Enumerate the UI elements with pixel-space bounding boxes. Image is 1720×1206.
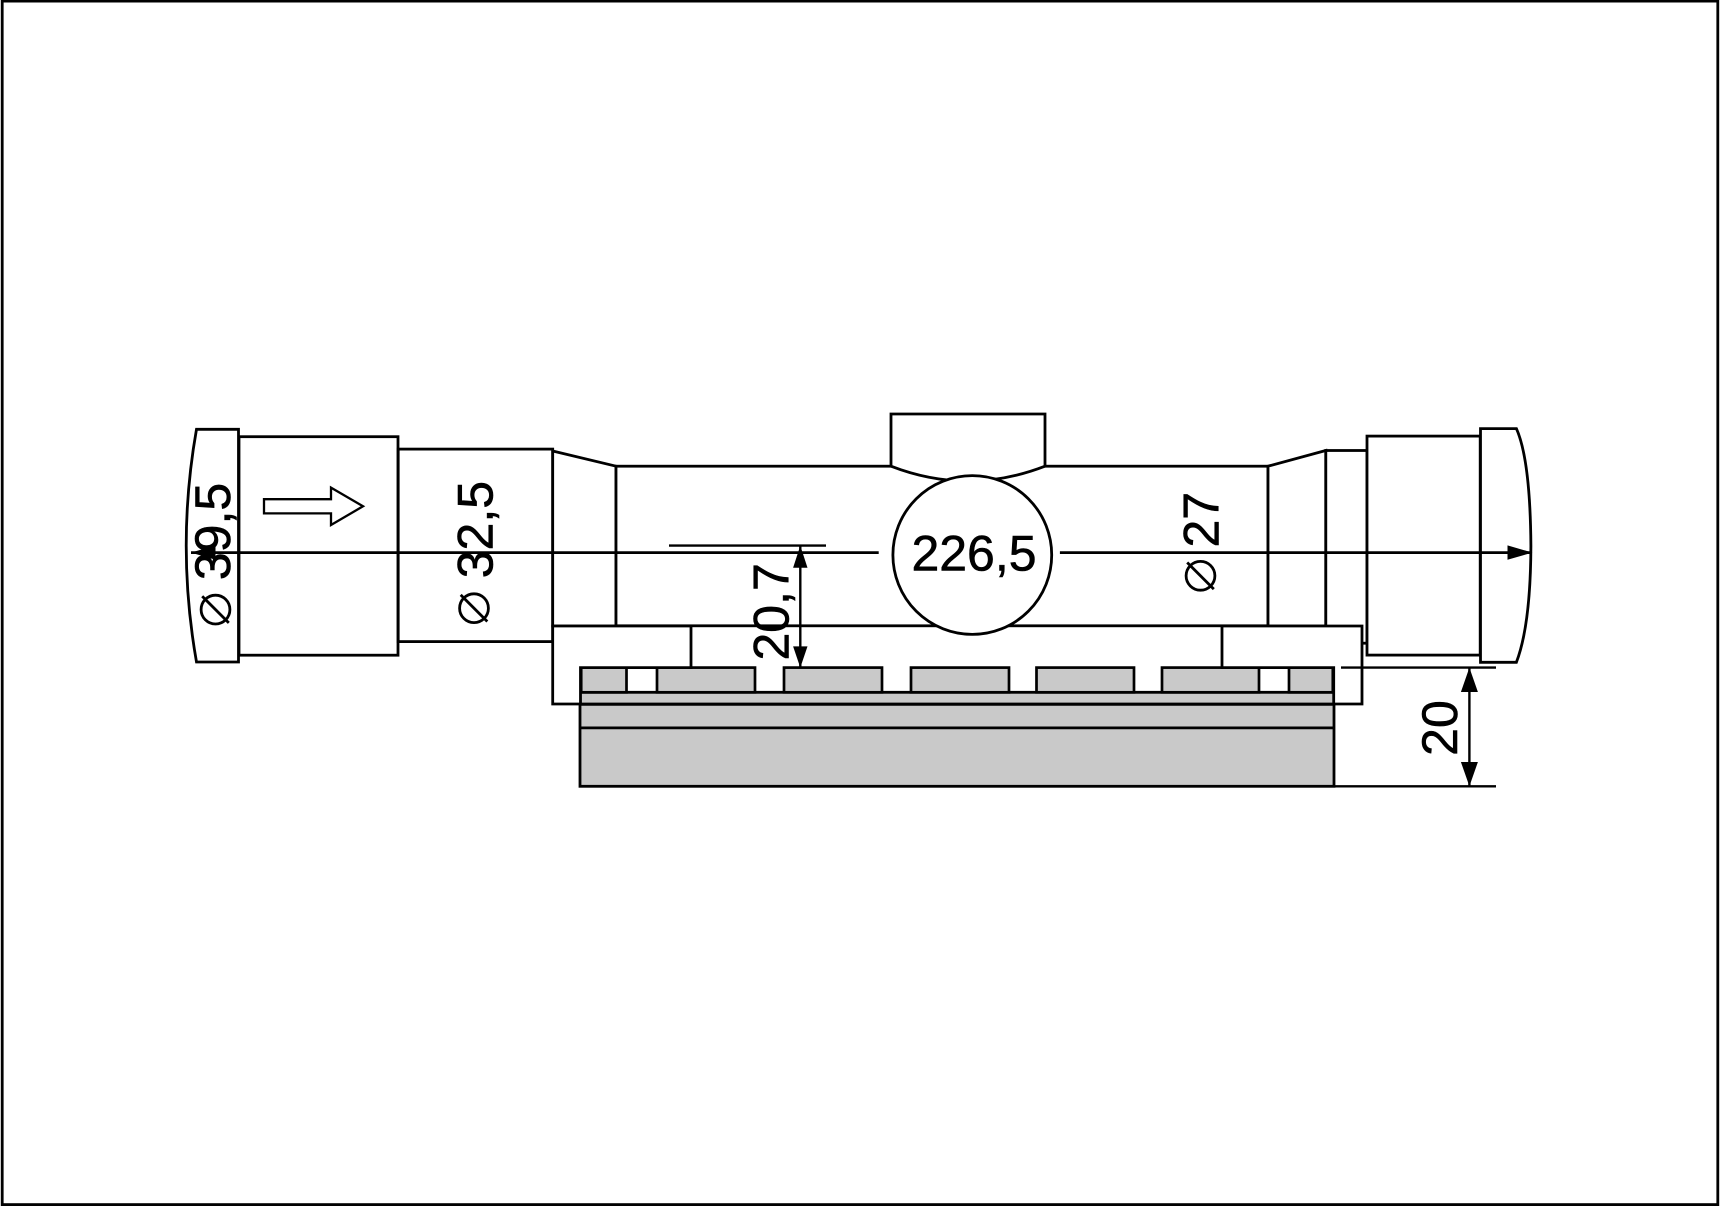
- svg-text:226,5: 226,5: [911, 525, 1036, 581]
- svg-text:39,5: 39,5: [185, 483, 241, 580]
- svg-text:32,5: 32,5: [448, 481, 504, 578]
- svg-text:20: 20: [1412, 700, 1468, 756]
- svg-text:27: 27: [1174, 492, 1230, 548]
- svg-text:20,7: 20,7: [744, 563, 800, 660]
